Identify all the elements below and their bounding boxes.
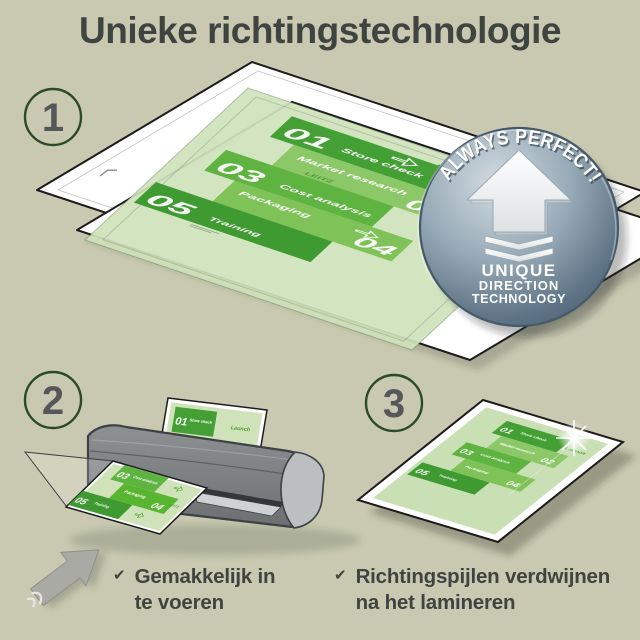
caption-line: te voeren xyxy=(135,591,224,614)
illustration: 1 LEITZ LEITZ xyxy=(0,0,640,640)
caption-line: Gemakkelijk in xyxy=(135,565,276,588)
step1-number: 1 xyxy=(42,96,64,140)
check-icon: ✔ xyxy=(113,564,126,616)
block-num: 01 xyxy=(174,416,188,429)
step3-number: 3 xyxy=(383,382,405,426)
caption-line: na het lamineren xyxy=(356,591,516,614)
step2-number: 2 xyxy=(42,379,64,423)
badge-line-technology: TECHNOLOGY xyxy=(472,292,566,306)
laminator-shadow xyxy=(70,525,360,555)
badge-line-direction: DIRECTION xyxy=(479,278,560,293)
caption-line: Richtingspijlen verdwijnen xyxy=(356,565,611,588)
laminator-end-cap xyxy=(281,452,324,528)
step3-group: 3 01 Store check Market research 02 03 C… xyxy=(358,375,636,556)
check-icon: ✔ xyxy=(334,564,347,616)
infographic-panel: Unieke richtingstechnologie 1 xyxy=(0,0,640,640)
caption-easy-feed: ✔ Gemakkelijk in te voeren xyxy=(113,564,275,616)
caption-arrows-disappear: ✔ Richtingspijlen verdwijnen na het lami… xyxy=(334,564,610,616)
